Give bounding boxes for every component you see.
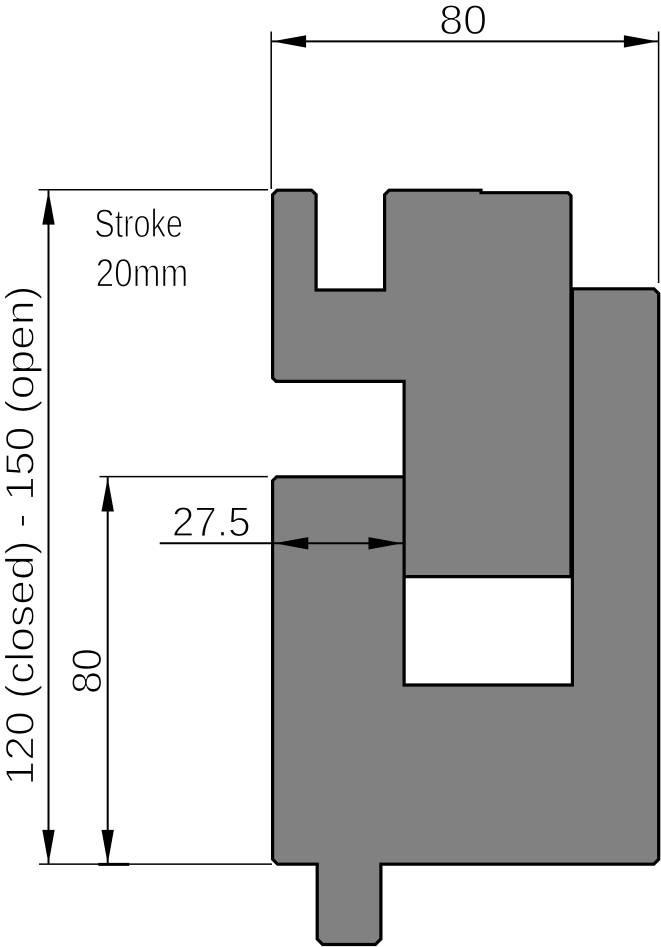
svg-text:120 (closed) - 150 (open): 120 (closed) - 150 (open) <box>0 286 43 786</box>
svg-text:80: 80 <box>439 0 487 43</box>
svg-text:Stroke: Stroke <box>94 202 183 246</box>
svg-text:27.5: 27.5 <box>172 498 251 545</box>
svg-text:80: 80 <box>63 648 110 694</box>
svg-text:20mm: 20mm <box>96 252 189 296</box>
